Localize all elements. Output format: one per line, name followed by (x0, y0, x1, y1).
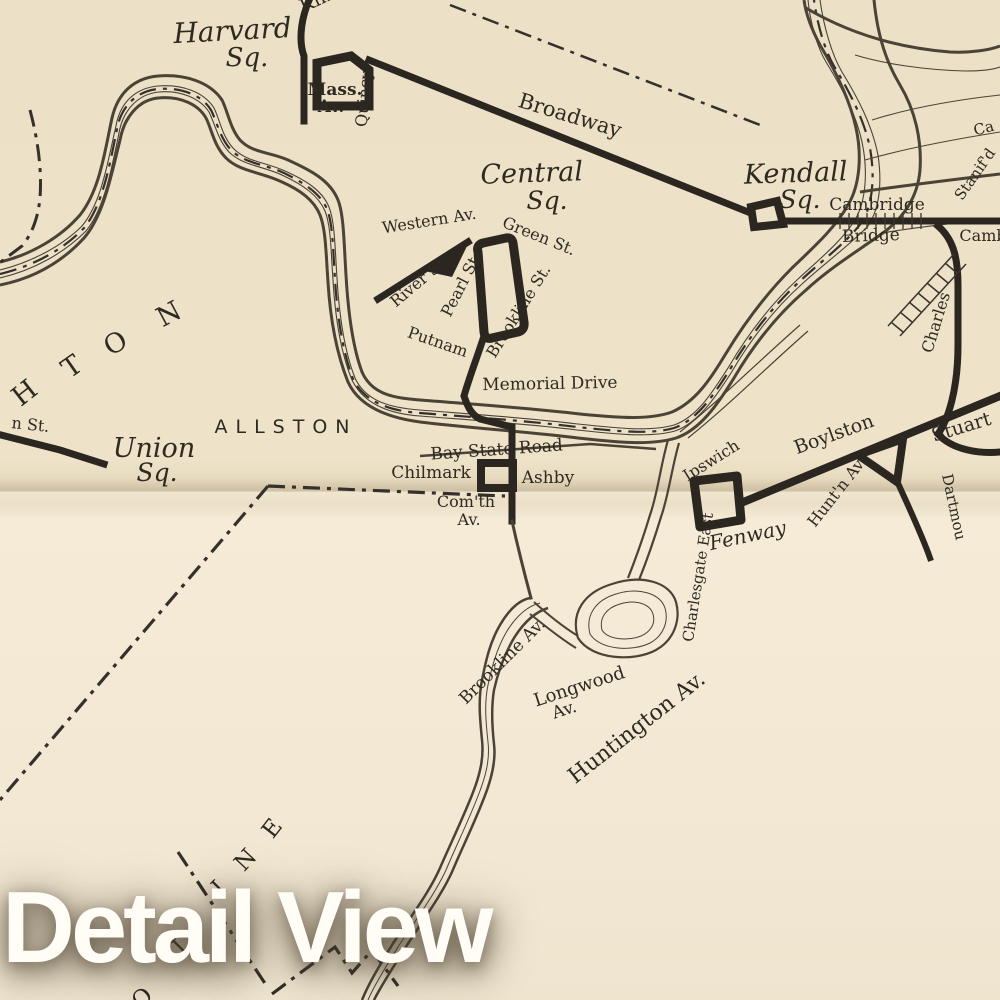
basin-contour-b (872, 95, 1000, 120)
district-label-allston: ALLSTON (214, 416, 357, 438)
street-label-ca-partial: Ca (972, 117, 996, 140)
route-mass-av-harvard (301, 0, 313, 121)
street-label-camb-partial: Camb (959, 226, 1000, 245)
route-brookline-av-stub (512, 521, 531, 598)
street-label-quincy: Quincy (352, 69, 376, 127)
district-letter-brighton-n: N (151, 295, 186, 333)
district-letter-brighton-t: T (56, 349, 89, 385)
street-label-longwood: Longwood (531, 662, 627, 711)
street-label-memorial-drive: Memorial Drive (482, 373, 618, 395)
street-label-western-av: Western Av. (381, 204, 478, 238)
label-bridge: Bridge (842, 225, 901, 247)
fens-pond-contour (589, 591, 666, 648)
street-label-broadway: Broadway (516, 88, 625, 142)
street-label-comth: Com'th (437, 492, 495, 511)
place-label-union-sq: Sq. (136, 458, 177, 487)
boundary-northwest (0, 110, 41, 264)
river-north-edge (0, 0, 859, 418)
basin-contour-a (855, 55, 1000, 71)
place-label-harvard-sq: Sq. (226, 43, 269, 73)
station-label-ashby: Ashby (521, 468, 575, 488)
station-label-chilmark: Chilmark (391, 463, 471, 483)
chilmark-ashby-loop (481, 463, 513, 488)
place-label-central-sq: Sq. (526, 186, 567, 215)
district-letter-brighton-h: H (6, 374, 44, 413)
label-cambridge: Cambridge (829, 195, 925, 215)
route-union-sq (0, 434, 104, 464)
kendall-sq-loop (751, 201, 783, 227)
detail-view-watermark: Detail View (2, 878, 1000, 979)
boundary-top-diagonal (450, 5, 760, 125)
charlesgate-stream-east (639, 443, 679, 580)
place-label-kendall-sq: Sq. (779, 185, 820, 214)
district-letter-brighton-o: O (98, 325, 133, 363)
street-label-charlesgate-east: Charlesgate East (679, 511, 717, 643)
basin-north-edge (806, 8, 1000, 52)
district-letter-brookline-e: E (257, 814, 288, 843)
boundary-allston-southwest (0, 486, 268, 800)
street-label-charles: Charles (918, 290, 954, 355)
map-detail-view: Kin Harvard Sq. Mass. Av. Quincy Broadwa… (0, 0, 1000, 1000)
district-letter-brookline-o: O (127, 983, 158, 1000)
street-label-n-st-partial: n St. (11, 413, 51, 436)
street-label-comth-av: Av. (456, 510, 480, 529)
street-label-putnam: Putnam (405, 323, 470, 361)
transit-map-canvas: Kin Harvard Sq. Mass. Av. Quincy Broadwa… (0, 0, 1000, 1000)
street-label-mass-av: Av. (317, 97, 345, 117)
fens-pond-contour-2 (601, 602, 653, 639)
